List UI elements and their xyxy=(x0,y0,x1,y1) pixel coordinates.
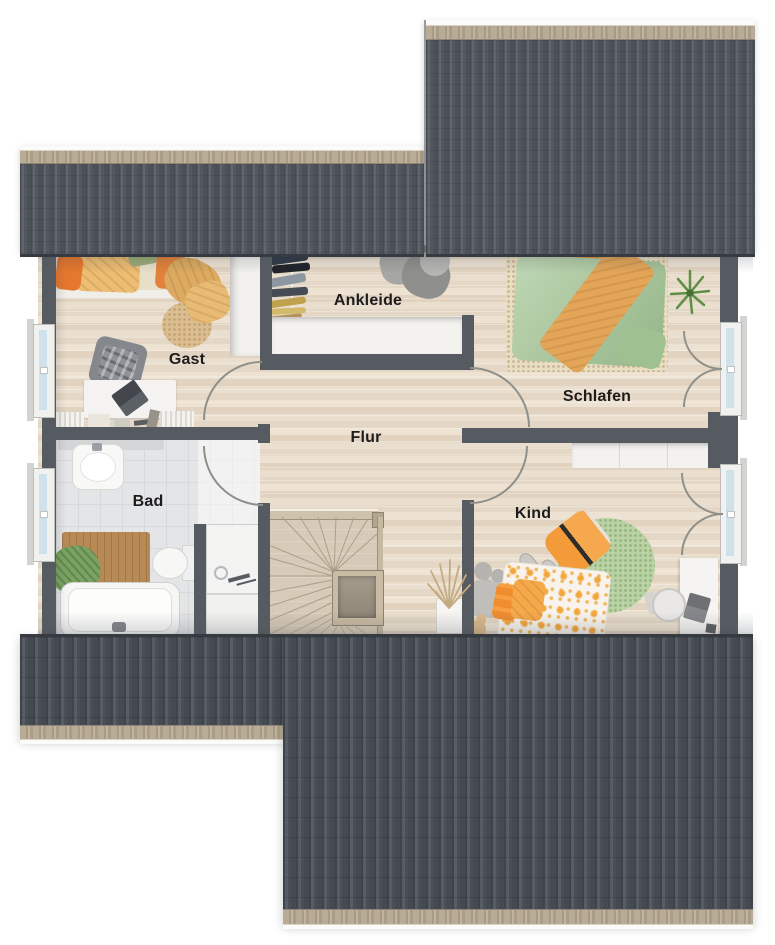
roof-bottom-right-tiles xyxy=(283,634,753,909)
schlafen-window-arc-upper xyxy=(684,331,722,369)
stair-treads xyxy=(270,517,377,641)
schlafen-door-arc xyxy=(470,368,529,427)
roof-bottom-right-eave xyxy=(283,909,753,925)
kind-door-arc xyxy=(470,446,527,503)
roof-top-left-eave xyxy=(20,150,424,164)
kind-window-arc-upper xyxy=(682,473,723,514)
floor-plan: Gast Ankleide Schlafen Flur Bad Kind xyxy=(0,0,775,945)
gast-door-arc xyxy=(204,362,262,420)
roof-bottom-left-tiles xyxy=(20,634,285,725)
roof-bottom-right xyxy=(283,634,753,924)
roof-top-left xyxy=(20,146,424,252)
schlafen-window-arc-lower xyxy=(684,369,722,407)
room-label-flur: Flur xyxy=(350,429,381,447)
roof-bottom-left xyxy=(20,634,285,739)
room-label-kind: Kind xyxy=(515,505,551,523)
roof-top-right-tiles xyxy=(426,40,755,257)
room-label-ankleide: Ankleide xyxy=(334,292,402,310)
room-label-schlafen: Schlafen xyxy=(563,388,631,406)
roof-top-right xyxy=(424,20,755,252)
roof-bottom-left-edge-line xyxy=(20,740,285,744)
roof-bottom-left-eave xyxy=(20,725,285,740)
kind-window-arc-lower xyxy=(682,514,723,555)
flur-dried-plant-icon xyxy=(428,560,470,608)
schlafen-plant-icon xyxy=(671,271,709,313)
room-label-gast: Gast xyxy=(169,351,205,369)
room-label-bad: Bad xyxy=(133,493,164,511)
door-swing-arcs xyxy=(204,331,723,555)
roof-bottom-right-edge-line xyxy=(283,925,753,929)
roof-top-left-tiles xyxy=(20,164,424,257)
bad-door-arc xyxy=(204,446,263,505)
roof-top-right-eave xyxy=(426,25,755,40)
